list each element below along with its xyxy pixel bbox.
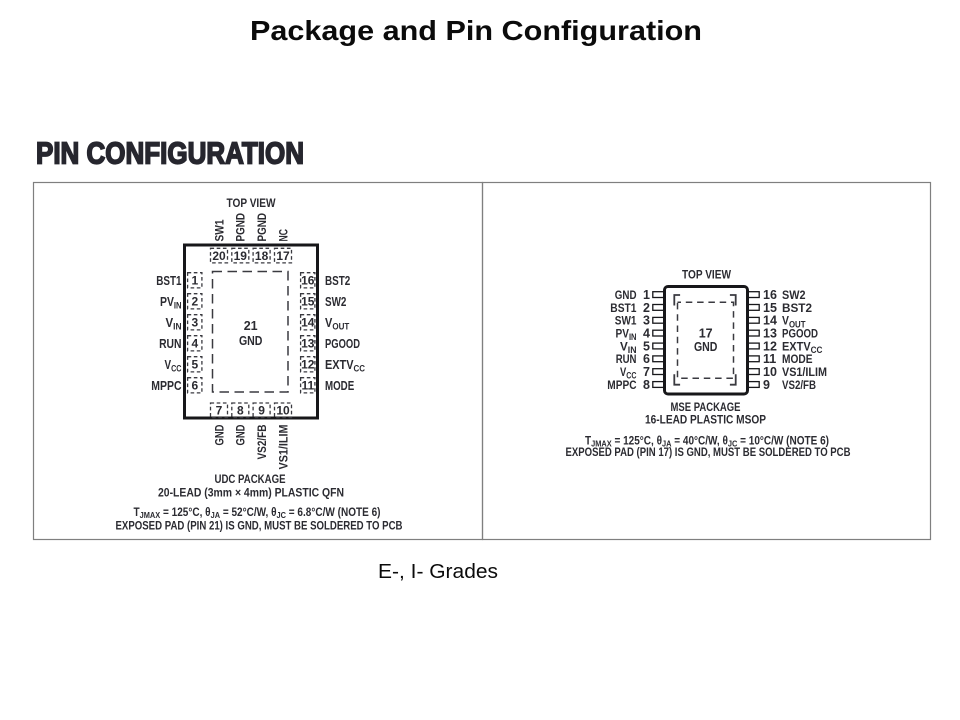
svg-text:17: 17 xyxy=(699,327,713,341)
svg-text:GND: GND xyxy=(239,334,263,348)
svg-text:TJMAX = 125°C, θJA = 52°C/W, θ: TJMAX = 125°C, θJA = 52°C/W, θJC = 6.8°C… xyxy=(134,507,381,520)
svg-text:10: 10 xyxy=(276,404,290,418)
svg-text:1: 1 xyxy=(191,274,198,288)
svg-text:8: 8 xyxy=(237,404,244,418)
svg-text:VIN: VIN xyxy=(166,315,182,333)
svg-text:VS1/ILIM: VS1/ILIM xyxy=(278,425,290,470)
svg-text:4: 4 xyxy=(191,337,198,351)
svg-text:20: 20 xyxy=(212,249,226,263)
svg-text:13: 13 xyxy=(301,337,315,351)
svg-text:11: 11 xyxy=(301,379,314,393)
svg-text:SW2: SW2 xyxy=(325,294,346,309)
svg-text:9: 9 xyxy=(763,378,770,392)
svg-text:9: 9 xyxy=(258,404,265,418)
svg-text:8: 8 xyxy=(643,378,650,392)
svg-text:PGOOD: PGOOD xyxy=(782,327,818,341)
svg-text:VS2/FB: VS2/FB xyxy=(257,425,269,460)
svg-text:3: 3 xyxy=(191,316,198,330)
svg-text:RUN: RUN xyxy=(159,336,181,351)
svg-text:MPPC: MPPC xyxy=(607,378,636,392)
svg-text:E-, I- Grades: E-, I- Grades xyxy=(378,560,498,583)
svg-text:VOUT: VOUT xyxy=(325,315,349,333)
svg-text:GND: GND xyxy=(694,340,718,354)
svg-text:PGND: PGND xyxy=(257,213,269,242)
svg-text:7: 7 xyxy=(643,365,650,379)
svg-text:6: 6 xyxy=(191,379,198,393)
svg-text:7: 7 xyxy=(216,404,223,418)
svg-text:18: 18 xyxy=(255,249,269,263)
svg-text:15: 15 xyxy=(763,301,777,315)
svg-text:2: 2 xyxy=(643,301,650,315)
svg-text:SW1: SW1 xyxy=(214,219,226,242)
svg-text:EXPOSED PAD (PIN 17) IS GND, M: EXPOSED PAD (PIN 17) IS GND, MUST BE SOL… xyxy=(566,447,851,459)
svg-text:PVIN: PVIN xyxy=(160,294,182,312)
svg-text:15: 15 xyxy=(301,295,315,309)
svg-text:BST1: BST1 xyxy=(610,301,636,315)
svg-text:4: 4 xyxy=(643,327,650,341)
svg-text:MPPC: MPPC xyxy=(151,378,182,393)
svg-text:2: 2 xyxy=(191,295,198,309)
svg-text:19: 19 xyxy=(234,249,248,263)
svg-text:BST2: BST2 xyxy=(782,301,812,315)
svg-text:PGOOD: PGOOD xyxy=(325,336,360,351)
svg-text:NC: NC xyxy=(278,229,290,242)
svg-text:17: 17 xyxy=(276,249,290,263)
svg-text:16-LEAD PLASTIC MSOP: 16-LEAD PLASTIC MSOP xyxy=(645,413,766,427)
svg-text:UDC PACKAGE: UDC PACKAGE xyxy=(215,472,286,486)
svg-text:13: 13 xyxy=(763,327,777,341)
svg-text:PGND: PGND xyxy=(236,213,248,242)
svg-text:TOP VIEW: TOP VIEW xyxy=(227,196,277,210)
svg-text:EXTVCC: EXTVCC xyxy=(325,357,365,375)
svg-text:MODE: MODE xyxy=(325,378,354,393)
svg-text:BST2: BST2 xyxy=(325,273,350,288)
svg-text:GND: GND xyxy=(236,425,248,446)
svg-text:GND: GND xyxy=(214,425,226,446)
svg-text:21: 21 xyxy=(244,319,258,333)
svg-text:VS2/FB: VS2/FB xyxy=(782,378,816,392)
svg-text:BST1: BST1 xyxy=(156,273,181,288)
svg-text:TOP VIEW: TOP VIEW xyxy=(682,268,732,282)
svg-text:10: 10 xyxy=(763,365,777,379)
svg-text:20-LEAD (3mm × 4mm) PLASTIC QF: 20-LEAD (3mm × 4mm) PLASTIC QFN xyxy=(158,486,344,500)
svg-text:VS1/ILIM: VS1/ILIM xyxy=(782,365,827,379)
svg-text:EXPOSED PAD (PIN 21) IS GND, M: EXPOSED PAD (PIN 21) IS GND, MUST BE SOL… xyxy=(116,521,403,533)
svg-text:5: 5 xyxy=(191,358,198,372)
svg-text:16: 16 xyxy=(301,274,315,288)
svg-text:PIN CONFIGURATION: PIN CONFIGURATION xyxy=(36,136,304,171)
svg-text:VCC: VCC xyxy=(165,357,182,375)
svg-text:14: 14 xyxy=(301,316,315,330)
svg-text:Package and Pin Configuration: Package and Pin Configuration xyxy=(250,15,702,46)
svg-text:12: 12 xyxy=(301,358,315,372)
